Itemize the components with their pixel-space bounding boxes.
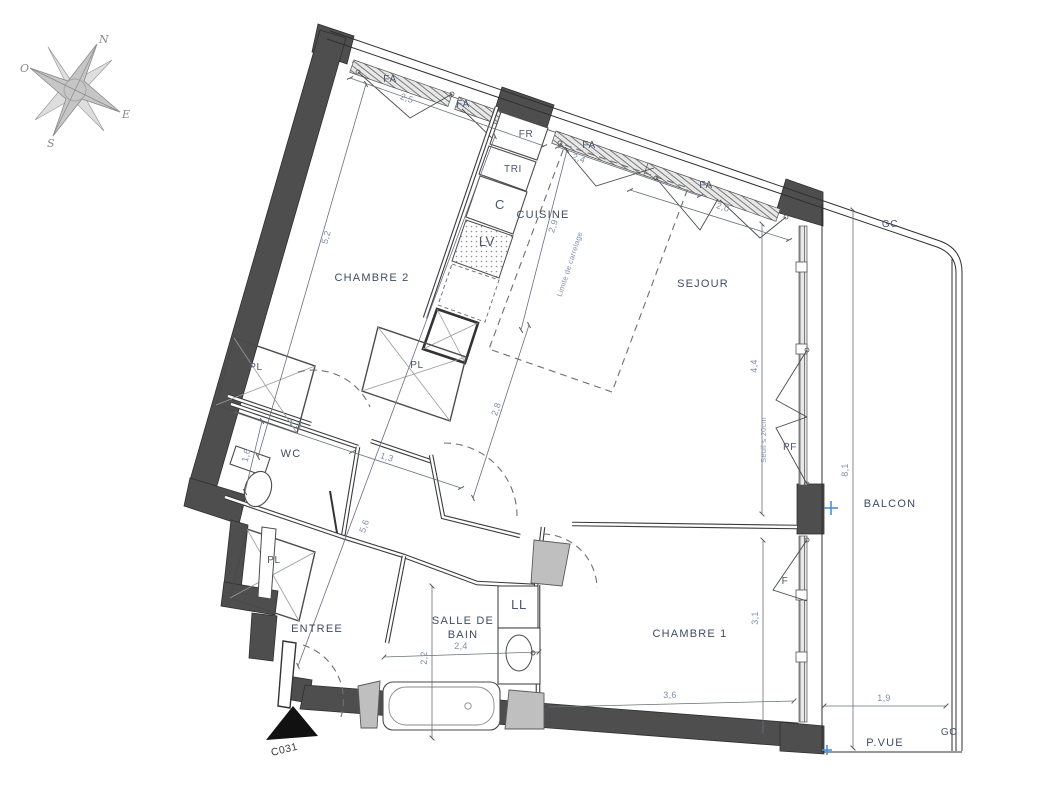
label-fa-1: FA	[383, 74, 396, 85]
compass-south-label: S	[47, 137, 55, 150]
label-fa-4: FA	[699, 180, 712, 191]
threshold-label: Seuil ≤ 20cm	[759, 417, 768, 463]
room-chambre1: CHAMBRE 1	[653, 628, 728, 640]
tile-limit-label: Limite de carrelage	[555, 231, 584, 298]
bathroom-door-leaf	[358, 681, 380, 728]
room-chambre2: CHAMBRE 2	[335, 272, 410, 284]
plan-code-label: C031	[270, 741, 299, 759]
label-gc-top: GC	[882, 219, 898, 230]
compass-east-label: E	[121, 108, 130, 121]
entrance-arrow-icon	[266, 706, 318, 740]
dim-chambre1-height: 3,1	[750, 611, 760, 624]
compass-rose-icon: N O E S	[20, 33, 130, 150]
dim-chambre2-length: 5,2	[319, 229, 332, 245]
vanity-counter	[498, 628, 540, 684]
window-band-fa4	[644, 163, 780, 221]
room-pvue: P.VUE	[866, 737, 904, 749]
fixture-labels: FA FA FA FA FR TRI C LV LL PL PL PL PF F…	[249, 74, 957, 738]
room-cuisine: CUISINE	[516, 209, 569, 221]
label-tri: TRI	[504, 164, 522, 175]
dim-hall-length: 5,6	[357, 518, 371, 534]
dim-sdb-width: 2,4	[454, 641, 467, 651]
label-pf: PF	[783, 442, 797, 453]
chambre1-door-leaf	[531, 540, 570, 586]
floor-plan-page: N O E S	[0, 0, 1053, 800]
dim-sejour-bay: 4,4	[749, 359, 759, 372]
dim-sdb-depth: 2,2	[419, 651, 429, 664]
label-f: F	[782, 576, 789, 587]
window-band-east-upper	[799, 226, 807, 348]
window-band-f	[799, 536, 807, 722]
label-pl-3: PL	[267, 555, 280, 566]
label-c: C	[495, 197, 505, 212]
room-labels: CHAMBRE 2 CUISINE SEJOUR WC ENTREE SALLE…	[281, 209, 917, 749]
label-ll: LL	[511, 597, 527, 612]
label-fr: FR	[519, 129, 534, 140]
entrance-marker: C031	[266, 706, 318, 759]
room-sejour: SEJOUR	[677, 278, 729, 290]
compass-west-label: O	[20, 62, 29, 75]
dim-chambre1-width: 3,6	[663, 690, 676, 700]
room-sdb-line2: BAIN	[448, 629, 478, 641]
dim-hall-upper: 2,8	[489, 401, 503, 417]
door-swings	[278, 370, 597, 717]
facade-and-railings	[327, 31, 962, 752]
label-gc-bottom: GC	[941, 727, 957, 738]
annotations: Limite de carrelage Seuil ≤ 20cm	[555, 231, 768, 463]
room-sdb-line1: SALLE DE	[432, 615, 494, 627]
room-wc: WC	[281, 448, 302, 460]
dim-balcon-width: 1,9	[877, 693, 890, 703]
compass-north-label: N	[98, 33, 109, 46]
label-pl-2: PL	[410, 360, 423, 371]
bathroom-door-leaf-2	[505, 690, 544, 729]
label-fa-3: FA	[582, 140, 595, 151]
label-fa-2: FA	[456, 99, 469, 110]
label-pl-1: PL	[249, 362, 262, 373]
room-entree: ENTREE	[291, 623, 343, 635]
survey-marks	[822, 501, 838, 755]
label-lv: LV	[479, 234, 495, 249]
dim-balcon-length: 8,1	[840, 463, 850, 476]
wc-door-leaf	[330, 491, 337, 533]
bathtub	[383, 682, 500, 730]
floor-plan-drawing: N O E S	[0, 0, 1053, 800]
room-balcon: BALCON	[864, 498, 916, 510]
